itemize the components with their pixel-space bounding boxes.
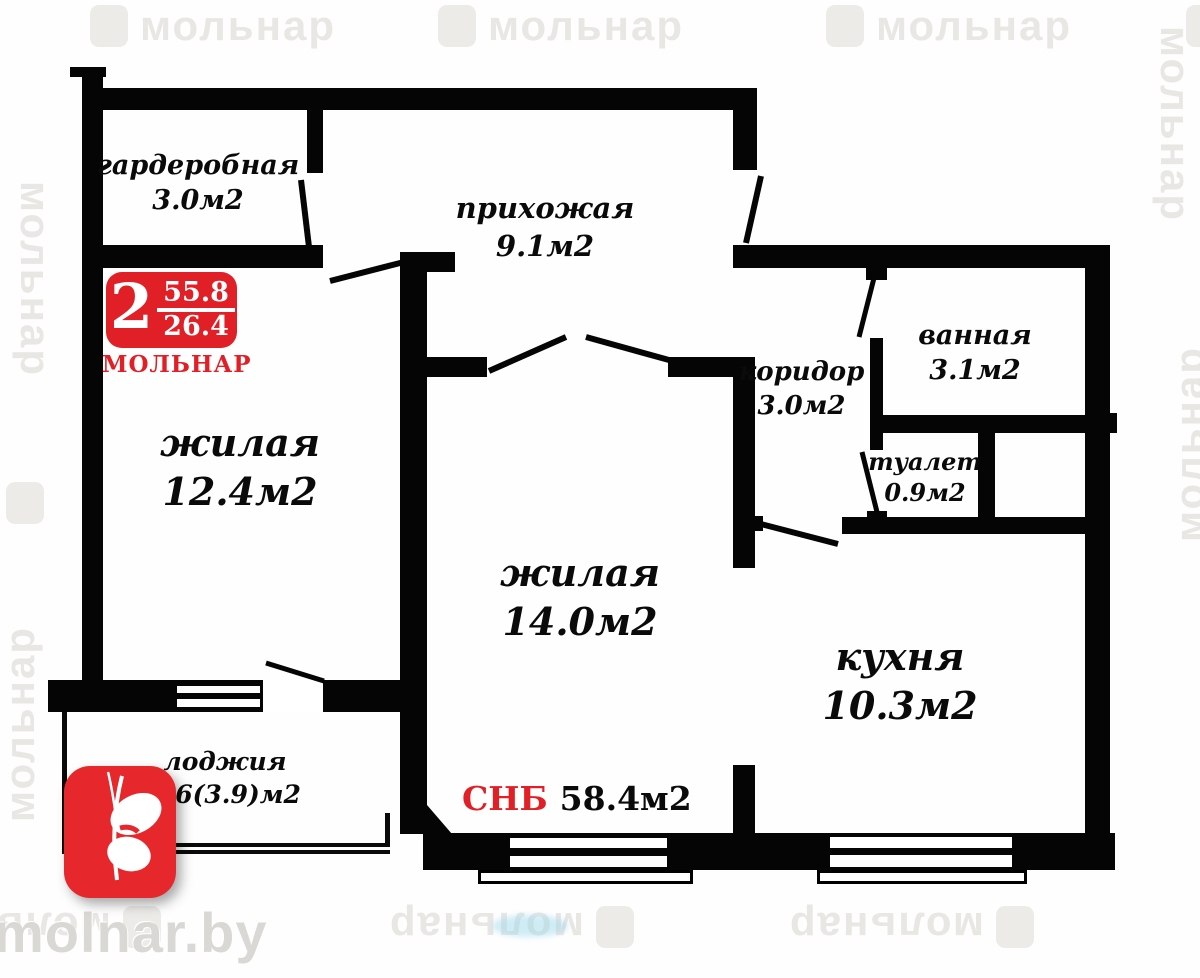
loggia-door-opening [263, 680, 323, 712]
wall-garderob-right [307, 110, 323, 173]
wall-living1-right [400, 252, 427, 812]
room-area: 10.3м2 [780, 681, 1020, 730]
room-name: ванная [880, 318, 1070, 353]
watermark-text: мольнар [0, 626, 44, 822]
room-name: гардеробная [88, 148, 308, 183]
butterfly-logo-icon [64, 766, 176, 898]
floor-plan: мольнар мольнар мольнар мольнар мольнар … [0, 0, 1200, 978]
watermark-logo-icon [596, 906, 634, 948]
wall-right-outer [1085, 245, 1110, 833]
room-area: 3.1м2 [880, 353, 1070, 388]
room-label-garderobnaya: гардеробная 3.0м2 [88, 148, 308, 218]
room-label-zhilaya-center: жилая 14.0м2 [460, 548, 700, 647]
watermark-logo-icon [438, 5, 476, 47]
watermark-logo-icon [996, 906, 1034, 948]
living1-door-swing [330, 262, 404, 281]
room-label-kuhnya: кухня 10.3м2 [780, 632, 1020, 731]
room-name: жилая [460, 548, 700, 597]
total-area-line: СНБ58.4м2 [462, 779, 692, 818]
living-area: 26.4 [163, 313, 229, 341]
total-area-label: СНБ [462, 779, 548, 818]
wall-entry-stub [733, 110, 757, 170]
living2-window-sill [478, 870, 693, 884]
room-area: 14.0м2 [460, 597, 700, 646]
wall-top-outer [82, 88, 757, 110]
room-label-tualet: туалет 0.9м2 [845, 446, 1005, 508]
watermark-logo-icon [6, 482, 44, 524]
room-label-koridor: коридор 3.0м2 [714, 356, 889, 424]
watermark-row-top: мольнар [90, 2, 336, 50]
loggia-door-swing [266, 663, 324, 681]
bath-door-swing [859, 278, 874, 337]
watermark-text: мольнар [140, 2, 336, 50]
watermark-right-edge: мольнар [1166, 274, 1200, 614]
kitchen-window-sill [817, 870, 1027, 884]
watermark-left-edge: мольнар [11, 99, 59, 459]
kitchen-window-glass [830, 837, 1012, 848]
site-name: molnar.by [0, 900, 268, 965]
watermark-row-top: мольнар [438, 2, 684, 50]
room-area: 12.4м2 [120, 467, 360, 516]
area-badge: 2 55.8 26.4 [106, 272, 237, 348]
wall-bath-top [733, 245, 1110, 268]
living2-double-door-swing-left [489, 337, 566, 371]
total-area-value: 58.4м2 [560, 779, 692, 818]
wall-garderob-bottom [82, 245, 323, 268]
loggia-window-glass [177, 699, 260, 707]
entry-door-swing [746, 176, 761, 243]
room-name: коридор [714, 356, 889, 390]
loggia-window-glass [177, 686, 260, 693]
wall-kitchen-left [733, 765, 755, 843]
watermark-row-bottom: мольнар [788, 903, 1034, 951]
living2-window-glass [510, 856, 667, 867]
watermark-row-top: мольнар [826, 2, 1072, 50]
rooms-count: 2 [110, 276, 153, 338]
room-name: кухня [780, 632, 1020, 681]
watermark-text: мольнар [1151, 26, 1199, 222]
wall-kitchen-door-hinge [752, 516, 763, 531]
room-name: жилая [120, 418, 360, 467]
area-fraction: 55.8 26.4 [157, 279, 235, 342]
brand-name: МОЛЬНАР [102, 351, 242, 378]
room-label-zhilaya-left: жилая 12.4м2 [120, 418, 360, 517]
watermark-logo-icon [826, 5, 864, 47]
living2-double-door-swing-right [586, 337, 669, 360]
total-area: 55.8 [163, 279, 229, 307]
room-area: 3.0м2 [714, 390, 889, 424]
watermark-left-edge: мольнар [0, 554, 44, 894]
kitchen-door-swing [757, 523, 838, 544]
room-area: 9.1м2 [435, 228, 655, 266]
watermark-text: мольнар [788, 903, 984, 951]
room-name: туалет [845, 446, 1005, 477]
room-label-prihozhaya: прихожая 9.1м2 [435, 190, 655, 265]
wall-hall-stub-left [427, 357, 487, 377]
watermark-right-edge: мольнар [1151, 0, 1199, 274]
room-area: 3.0м2 [88, 183, 308, 218]
kitchen-window-glass [830, 855, 1012, 867]
molnar-logo [64, 766, 176, 898]
wall-loggia-top [48, 680, 407, 712]
wall-bath-door-hinge [866, 268, 887, 280]
room-area: 0.9м2 [845, 477, 1005, 508]
wall-bath-bottom [883, 415, 1110, 433]
wall-wc-bottom [842, 517, 1090, 534]
watermark-text: мольнар [488, 2, 684, 50]
watermark-text: мольнар [1166, 346, 1200, 542]
watermark-text: мольнар [876, 2, 1072, 50]
watermark-text: мольнар [11, 181, 59, 377]
loggia-corner-line [385, 813, 390, 847]
living2-window-glass [510, 838, 667, 848]
room-name: прихожая [435, 190, 655, 228]
watermark-logo-icon [90, 5, 128, 47]
room-label-vannaya: ванная 3.1м2 [880, 318, 1070, 388]
watermark-smudge [492, 915, 568, 937]
